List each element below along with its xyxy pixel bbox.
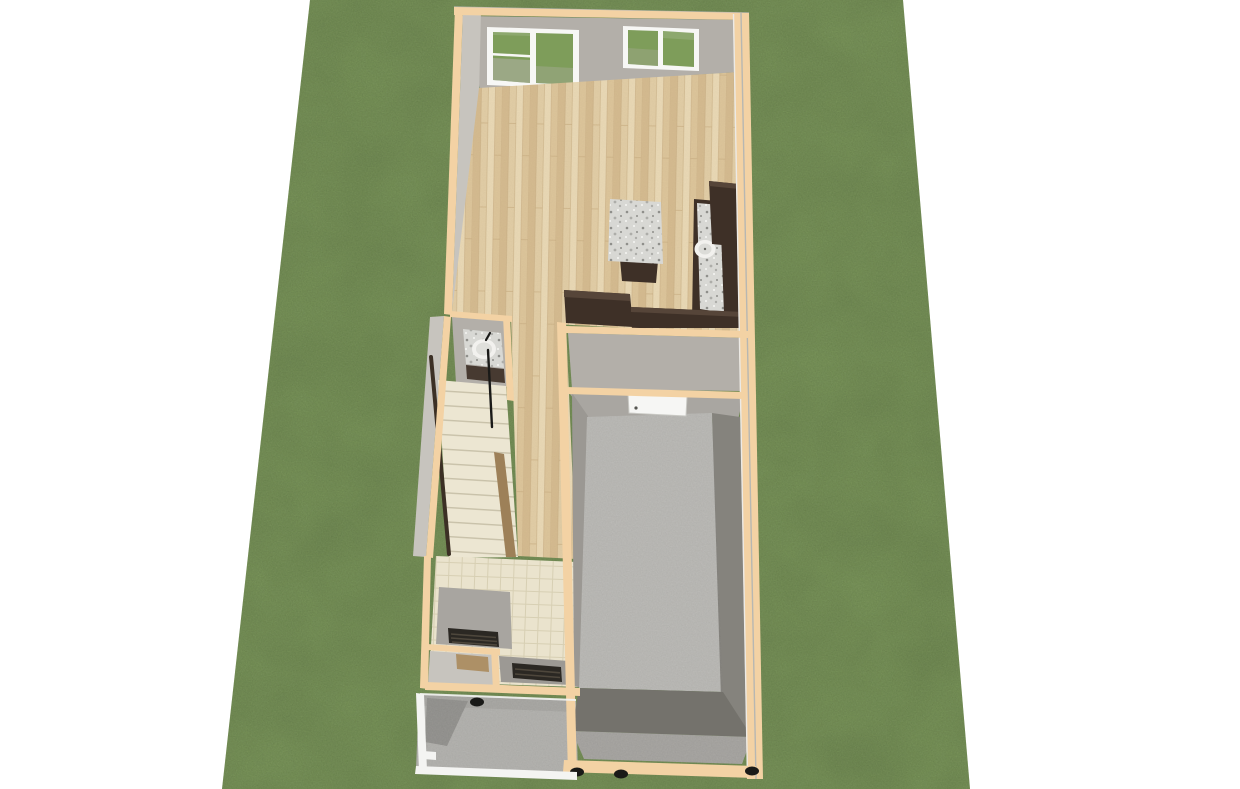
trailer-wheel <box>614 770 628 779</box>
door-knob <box>634 406 637 409</box>
porch-post-base <box>423 751 436 760</box>
closet-floor <box>456 654 489 672</box>
trailer-wheel <box>470 698 484 707</box>
sliding-door-glass-shade <box>536 66 573 85</box>
vanity-sink-basin <box>476 343 492 356</box>
trailer-wheel <box>745 767 759 776</box>
sliding-door-glass-shade <box>493 58 530 83</box>
floorplan-render <box>0 0 1240 789</box>
kitchen-south-wall-face <box>568 333 746 391</box>
slider-window-glass-shade <box>628 48 658 66</box>
floorplan-render-stage <box>0 0 1240 789</box>
kitchen-island-countertop <box>608 199 663 264</box>
garage-south-wall-shadow <box>572 688 752 737</box>
kitchen-sink-drain <box>704 248 706 250</box>
